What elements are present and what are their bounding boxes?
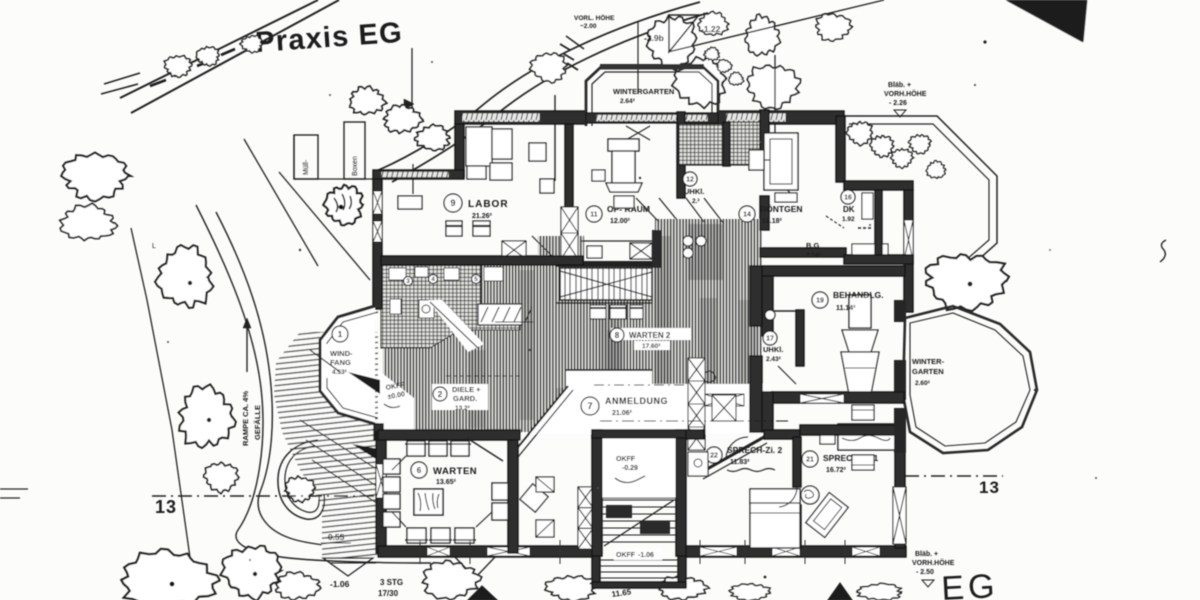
svg-text:17: 17 xyxy=(766,336,774,343)
svg-text:-1.06: -1.06 xyxy=(638,552,654,559)
svg-text:9: 9 xyxy=(450,198,455,208)
svg-text:WINTER-: WINTER- xyxy=(912,357,945,366)
svg-text:21.26²: 21.26² xyxy=(472,213,493,220)
svg-text:17/30: 17/30 xyxy=(378,589,399,598)
svg-text:13.65²: 13.65² xyxy=(436,479,457,486)
svg-text:21.06²: 21.06² xyxy=(612,410,633,417)
svg-text:DK: DK xyxy=(843,205,855,214)
svg-text:8: 8 xyxy=(615,331,620,340)
svg-text:7: 7 xyxy=(587,401,592,411)
svg-text:EG: EG xyxy=(940,567,999,600)
svg-text:2.60²: 2.60² xyxy=(915,380,931,387)
svg-text:Müll-: Müll- xyxy=(303,159,310,175)
svg-text:B.G: B.G xyxy=(806,241,820,250)
svg-text:1: 1 xyxy=(338,330,343,339)
svg-text:2.14²: 2.14² xyxy=(806,252,822,259)
svg-text:6: 6 xyxy=(417,466,422,475)
svg-text:VORL. HÖHE: VORL. HÖHE xyxy=(574,13,615,22)
svg-text:WARTEN 2: WARTEN 2 xyxy=(629,331,671,340)
svg-text:2.43²: 2.43² xyxy=(766,356,782,363)
svg-text:-0.29: -0.29 xyxy=(622,465,638,472)
svg-text:-1.22: -1.22 xyxy=(701,24,721,34)
svg-text:SPRECH-Zi. 2: SPRECH-Zi. 2 xyxy=(727,445,783,455)
svg-text:LABOR: LABOR xyxy=(468,199,509,210)
svg-text:14: 14 xyxy=(743,212,751,219)
svg-text:Boxen: Boxen xyxy=(352,156,359,176)
svg-text:VORH.HÖHE: VORH.HÖHE xyxy=(884,89,927,98)
svg-text:WARTEN: WARTEN xyxy=(433,466,477,477)
svg-text:FANG: FANG xyxy=(330,358,351,367)
svg-text:16.72²: 16.72² xyxy=(826,467,847,474)
svg-text:RAMPE CA. 4%: RAMPE CA. 4% xyxy=(241,391,250,446)
svg-text:13: 13 xyxy=(155,497,177,517)
svg-text:ANMELDUNG: ANMELDUNG xyxy=(605,396,668,406)
svg-text:WIND-: WIND- xyxy=(330,349,353,358)
svg-text:OKFF: OKFF xyxy=(616,552,636,559)
svg-text:2.64²: 2.64² xyxy=(620,98,636,105)
svg-text:UHKl.: UHKl. xyxy=(684,187,704,196)
svg-text:Bläb. +: Bläb. + xyxy=(915,551,938,558)
svg-text:16: 16 xyxy=(844,195,852,202)
svg-text:- 2.50: - 2.50 xyxy=(916,569,934,576)
svg-text:1.92: 1.92 xyxy=(842,216,855,223)
svg-text:WINTERGARTEN: WINTERGARTEN xyxy=(613,87,674,96)
svg-text:GARTEN: GARTEN xyxy=(912,367,944,376)
svg-text:UHKl.: UHKl. xyxy=(763,345,783,354)
svg-text:13.2²: 13.2² xyxy=(455,405,471,412)
svg-text:-2.9b: -2.9b xyxy=(644,33,664,43)
svg-text:21: 21 xyxy=(806,457,814,464)
svg-text:2.²: 2.² xyxy=(692,198,700,205)
svg-text:11: 11 xyxy=(590,212,598,219)
svg-text:19: 19 xyxy=(816,298,824,305)
svg-text:BEHANDLG.: BEHANDLG. xyxy=(833,290,884,300)
svg-text:VORH.HÖHE: VORH.HÖHE xyxy=(912,558,955,567)
svg-text:17.60²: 17.60² xyxy=(642,343,661,350)
svg-text:OKFF: OKFF xyxy=(616,456,636,463)
svg-text:4.53²: 4.53² xyxy=(332,369,348,376)
svg-text:GEFÄLLE: GEFÄLLE xyxy=(253,405,262,440)
svg-text:2: 2 xyxy=(438,390,443,399)
svg-text:11.14²: 11.14² xyxy=(836,305,856,312)
svg-text:13: 13 xyxy=(979,478,1000,497)
svg-text:11.83²: 11.83² xyxy=(730,459,750,466)
svg-text:12: 12 xyxy=(686,177,694,184)
svg-text:L: L xyxy=(152,243,156,250)
svg-text:GARD.: GARD. xyxy=(453,394,477,403)
svg-text:~2.00: ~2.00 xyxy=(580,23,597,30)
svg-text:3 STG: 3 STG xyxy=(380,578,403,587)
svg-text:-0.55: -0.55 xyxy=(325,532,345,542)
svg-text:12.00²: 12.00² xyxy=(610,218,631,225)
svg-text:Bläb. +: Bläb. + xyxy=(888,82,911,89)
svg-text:DIELE +: DIELE + xyxy=(452,385,481,394)
svg-text:22: 22 xyxy=(710,453,718,460)
svg-text:RÖNTGEN: RÖNTGEN xyxy=(760,204,803,214)
svg-text:- 2.26: - 2.26 xyxy=(889,100,907,107)
svg-text:12.18²: 12.18² xyxy=(762,218,783,225)
svg-text:-1.06: -1.06 xyxy=(330,579,350,589)
